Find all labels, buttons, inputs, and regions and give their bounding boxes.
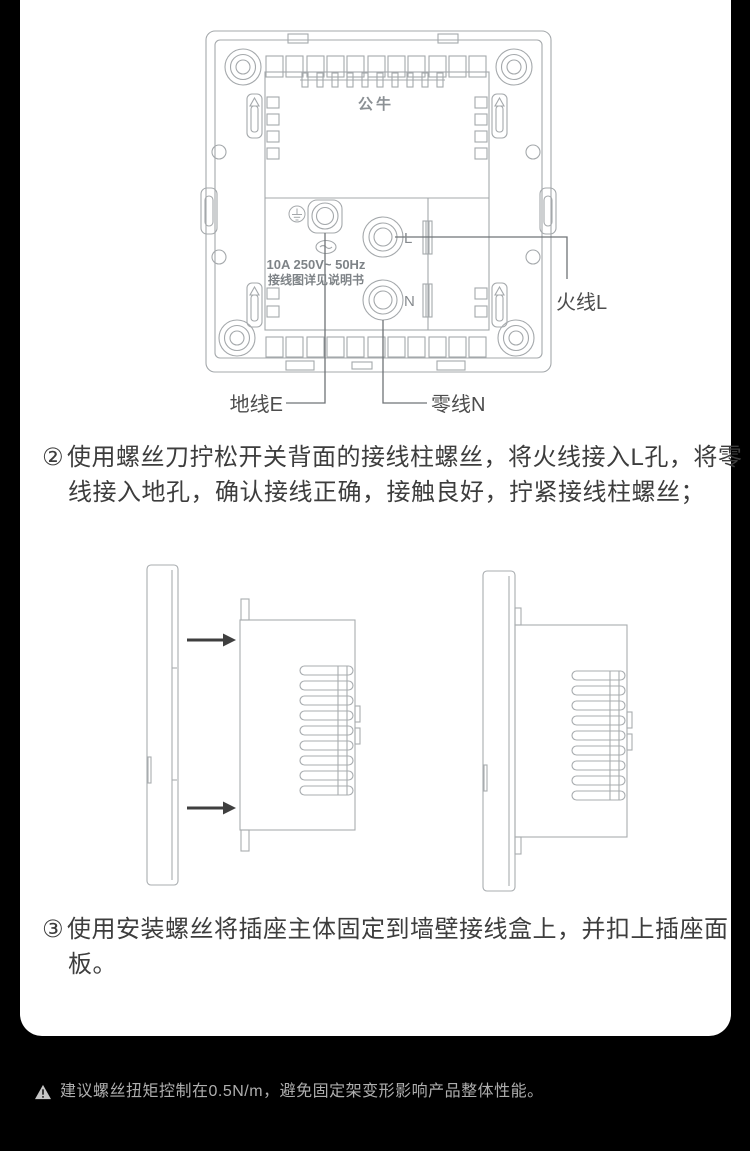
content-card: 公牛 10A 250V~ 50Hz 接线图详见说明书 L N 火线L 地线E 零…	[20, 0, 731, 1036]
bottom-vent-strip	[266, 337, 486, 357]
step-2-number: ②	[42, 444, 64, 471]
comb-teeth	[300, 73, 445, 87]
socket-body-side-view	[240, 599, 360, 851]
wiring-note-text: 接线图详见说明书	[268, 272, 364, 287]
brand-logo: 公牛	[358, 95, 394, 113]
live-wire-label: 火线L	[556, 291, 607, 314]
vent-slots	[572, 671, 625, 800]
side-mounting-lugs	[201, 188, 556, 234]
step-2-instruction: ②使用螺丝刀拧松开关背面的接线柱螺丝，将火线接入L孔，将零线接入地孔，确认接线正…	[42, 440, 746, 510]
installation-diagram	[130, 555, 660, 910]
step-3-instruction: ③使用安装螺丝将插座主体固定到墙壁接线盒上，并扣上插座面板。	[42, 912, 746, 982]
side-clips	[247, 94, 507, 327]
terminal-n-label: N	[404, 293, 415, 310]
footer-warning-text: 建议螺丝扭矩控制在0.5N/m，避免固定架变形影响产品整体性能。	[60, 1081, 544, 1103]
arrow-right-icon	[187, 634, 236, 815]
frame-holes	[212, 145, 540, 264]
top-vent-strip	[266, 56, 486, 77]
earth-terminal-screw	[308, 200, 342, 233]
earth-wire-label: 地线E	[230, 393, 283, 416]
page-root: { "wiring_diagram": { "brand": "公牛", "ra…	[0, 0, 750, 1151]
step-2-text: 使用螺丝刀拧松开关背面的接线柱螺丝，将火线接入L孔，将零线接入地孔，确认接线正确…	[67, 444, 742, 506]
terminal-l-label: L	[404, 230, 412, 247]
step-3-text: 使用安装螺丝将插座主体固定到墙壁接线盒上，并扣上插座面板。	[67, 916, 729, 978]
earth-symbol-icon	[289, 206, 305, 222]
bottom-mounting-tabs	[286, 361, 465, 370]
footer-warning-bar: 建议螺丝扭矩控制在0.5N/m，避免固定架变形影响产品整体性能。	[34, 1080, 734, 1104]
wiring-diagram: 公牛 10A 250V~ 50Hz 接线图详见说明书 L N 火线L 地线E 零…	[180, 20, 640, 425]
neutral-terminal-screw	[363, 280, 432, 320]
top-mounting-tabs	[288, 34, 458, 43]
vent-slots	[300, 666, 353, 795]
face-plate-side-view	[147, 565, 178, 885]
rating-text: 10A 250V~ 50Hz	[267, 257, 366, 272]
warning-icon	[34, 1084, 52, 1100]
step-3-number: ③	[42, 916, 64, 943]
neutral-wire-label: 零线N	[431, 393, 485, 416]
ccc-cert-icon	[316, 241, 336, 254]
assembled-socket-side-view	[483, 571, 632, 891]
